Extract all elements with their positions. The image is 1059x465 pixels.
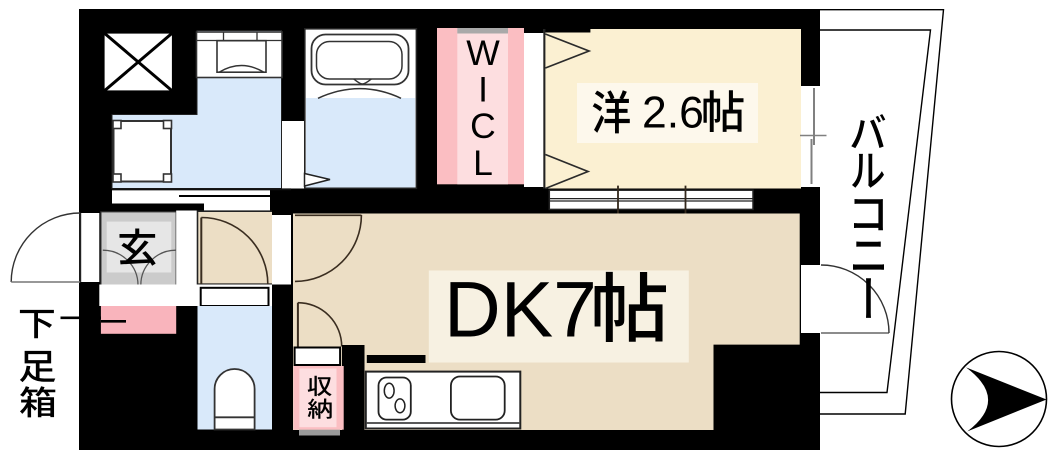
svg-text:W: W (466, 33, 500, 73)
svg-text:DK7: DK7 (444, 266, 597, 354)
svg-text:I: I (478, 70, 488, 110)
svg-text:2.6: 2.6 (642, 89, 704, 138)
svg-text:C: C (470, 106, 496, 146)
svg-text:L: L (473, 143, 493, 183)
